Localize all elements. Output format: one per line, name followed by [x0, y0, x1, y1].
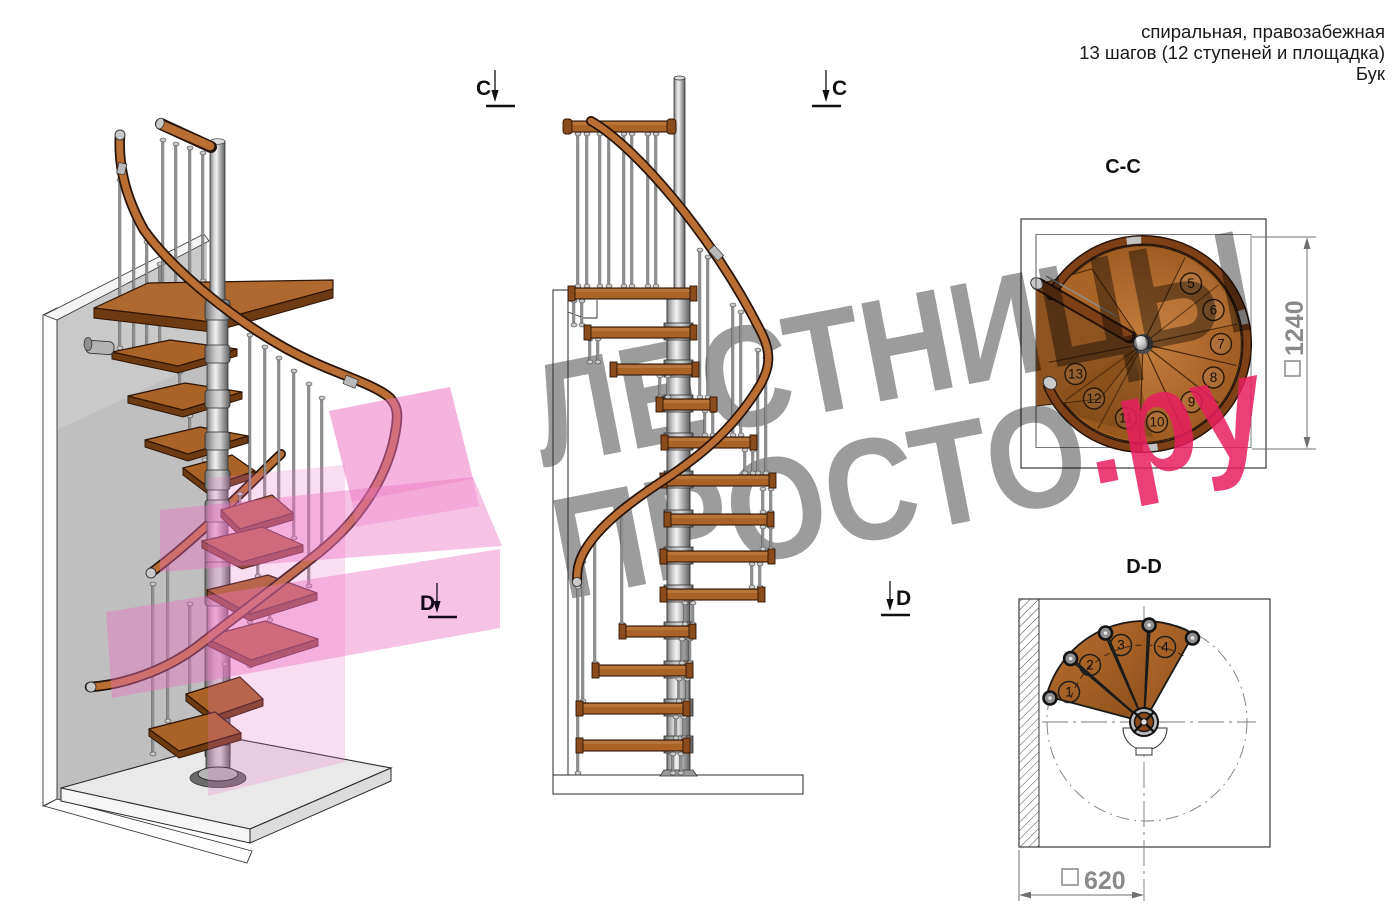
svg-text:1: 1: [1065, 685, 1073, 700]
svg-text:C: C: [476, 77, 491, 100]
svg-text:D: D: [420, 592, 435, 615]
svg-text:Бук: Бук: [1356, 63, 1386, 84]
svg-text:C: C: [832, 77, 847, 100]
svg-text:C-C: C-C: [1105, 156, 1141, 178]
svg-text:D-D: D-D: [1126, 556, 1162, 578]
svg-text:13 шагов (12 ступеней и площад: 13 шагов (12 ступеней и площадка): [1079, 42, 1385, 63]
svg-text:4: 4: [1161, 640, 1169, 655]
svg-text:спиральная, правозабежная: спиральная, правозабежная: [1141, 21, 1385, 42]
svg-text:D: D: [896, 587, 911, 610]
svg-text:1240: 1240: [1281, 300, 1309, 356]
svg-text:2: 2: [1086, 658, 1094, 673]
svg-text:3: 3: [1117, 638, 1125, 653]
svg-text:620: 620: [1084, 867, 1126, 895]
